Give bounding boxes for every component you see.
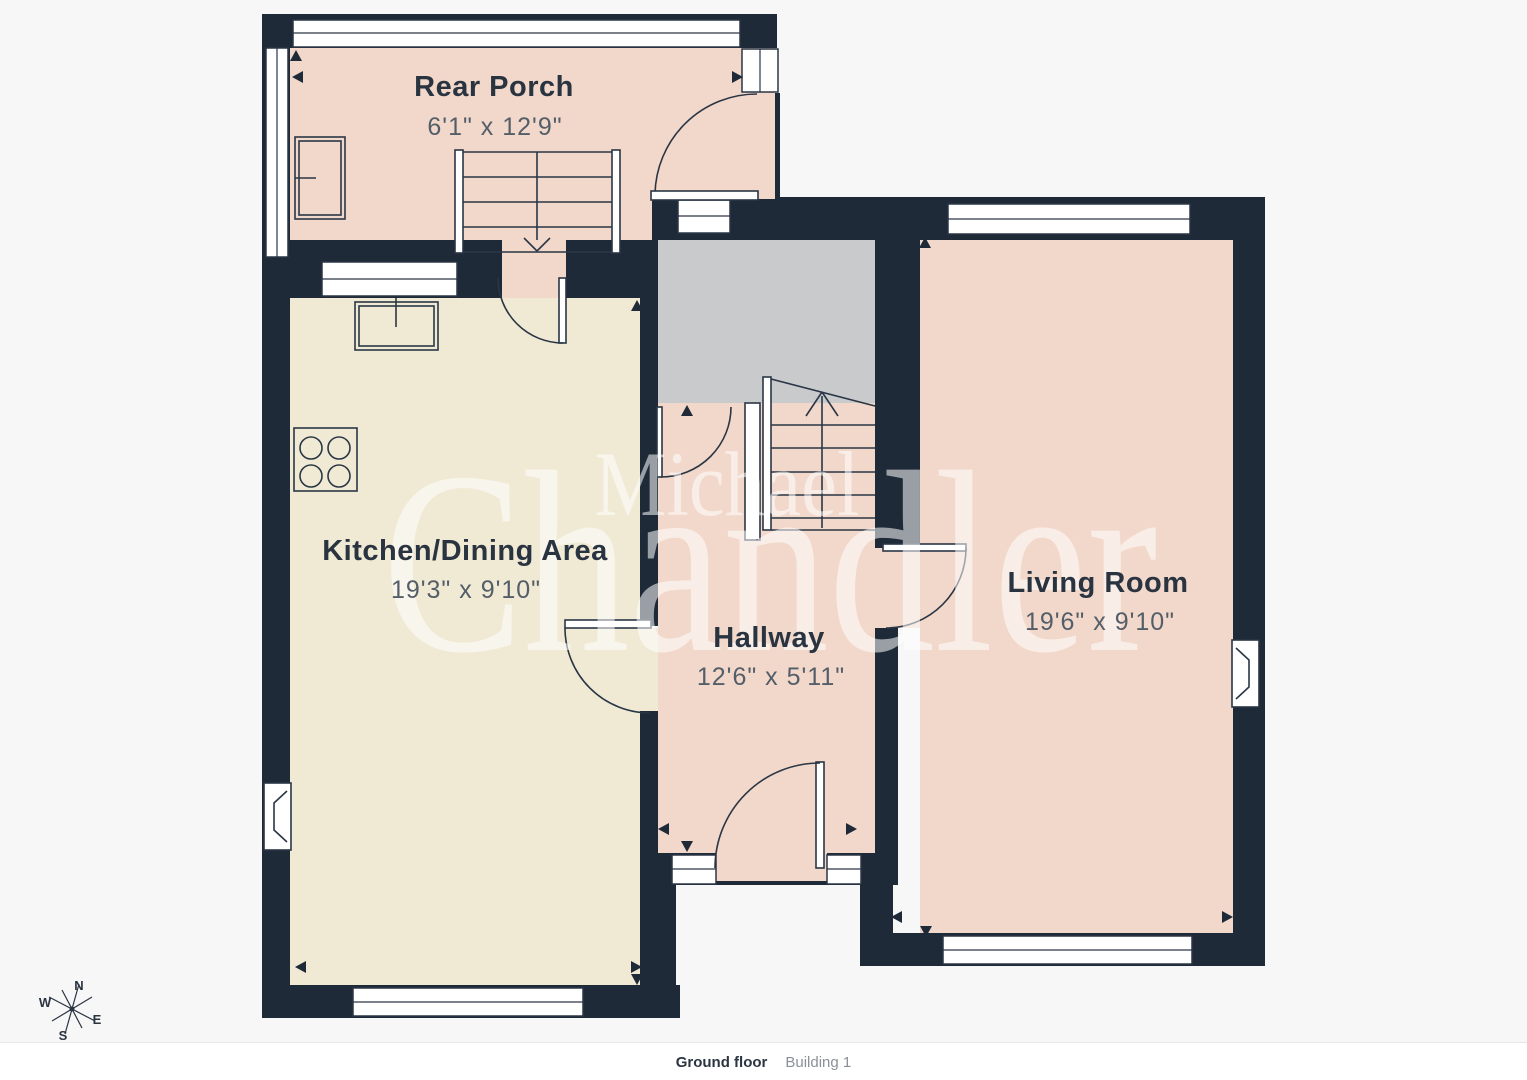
compass-rose: N E S W: [39, 978, 102, 1042]
porch-stairs-left-rail: [455, 150, 463, 253]
floorplan-page: Michael Chandler Rear Porch 6'1" x 12'9"…: [0, 0, 1527, 1080]
wall-kitchen-hall-lower: [640, 711, 658, 853]
dims-rear-porch: 6'1" x 12'9": [427, 113, 562, 141]
label-kitchen: Kitchen/Dining Area: [322, 535, 608, 567]
wall-living-right: [1233, 198, 1265, 966]
dims-hallway: 12'6" x 5'11": [697, 663, 845, 691]
kitchen-fireplace: [264, 783, 291, 850]
floor-label: Ground floor: [676, 1054, 768, 1071]
label-living: Living Room: [1007, 567, 1188, 599]
wall-kitchen-left: [262, 298, 290, 1018]
dims-living: 19'6" x 9'10": [1025, 608, 1175, 636]
label-rear-porch: Rear Porch: [414, 71, 574, 103]
building-label: Building 1: [785, 1054, 851, 1071]
footer-bar: Ground floor Building 1: [0, 1042, 1527, 1080]
compass-center-dot: [70, 1007, 75, 1012]
compass-s: S: [59, 1028, 68, 1042]
label-hallway: Hallway: [713, 622, 825, 654]
living-fireplace: [1232, 640, 1259, 707]
front-door-opening: [716, 853, 827, 881]
porch-stairs-right-rail: [612, 150, 620, 253]
porch-kitchen-door-leaf: [559, 278, 566, 343]
floorplan-canvas: Michael Chandler Rear Porch 6'1" x 12'9"…: [0, 0, 1527, 1042]
porch-exterior-door-leaf: [651, 191, 758, 200]
compass-w: W: [39, 995, 52, 1010]
front-door-leaf: [816, 762, 824, 868]
compass-n: N: [74, 978, 83, 993]
dims-kitchen: 19'3" x 9'10": [391, 576, 541, 604]
compass-e: E: [93, 1012, 102, 1027]
